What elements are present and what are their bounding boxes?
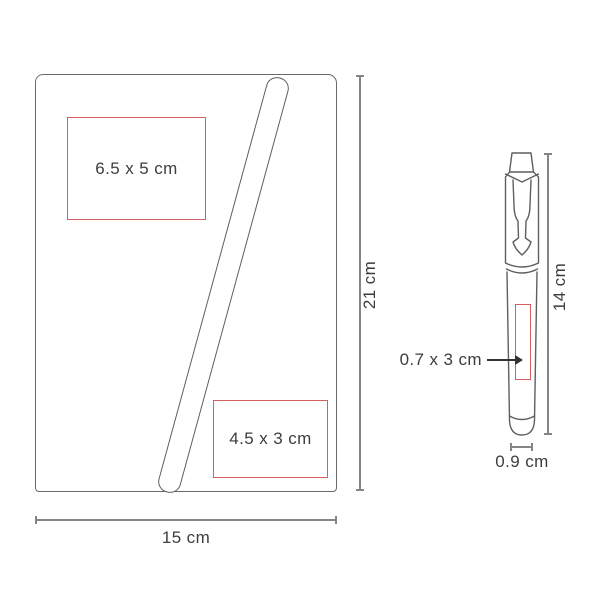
pen-cap-chevron [506, 174, 539, 182]
pen-height-dimension-line [547, 153, 549, 435]
dimension-tick [356, 489, 364, 491]
pen-print-area-label-wrap: 0.7 x 3 cm [380, 350, 482, 370]
pen-barrel-ring [510, 416, 535, 420]
notebook-print-area-bottom-label: 4.5 x 3 cm [229, 429, 311, 449]
dimension-tick [35, 516, 37, 524]
pen-height-label-wrap: 14 cm [550, 261, 570, 313]
pen-illustration [500, 150, 544, 442]
notebook-height-label: 21 cm [360, 261, 380, 309]
pen-cap [506, 172, 539, 267]
notebook-print-area-top: 6.5 x 5 cm [67, 117, 206, 220]
dimension-tick [544, 433, 552, 435]
pen-print-area [515, 304, 531, 380]
callout-arrow-line [487, 359, 518, 361]
notebook-width-label-wrap: 15 cm [146, 528, 226, 548]
notebook-print-area-bottom: 4.5 x 3 cm [213, 400, 328, 478]
dimension-tick [510, 443, 512, 451]
dimension-diagram: 6.5 x 5 cm 4.5 x 3 cm 21 cm 15 cm 0.7 x … [0, 0, 600, 600]
notebook-width-label: 15 cm [162, 528, 210, 547]
pen-print-area-label: 0.7 x 3 cm [400, 350, 482, 369]
pen-diameter-label-wrap: 0.9 cm [487, 452, 557, 472]
dimension-tick [335, 516, 337, 524]
pen-finial [510, 153, 534, 172]
notebook-height-label-wrap: 21 cm [360, 259, 380, 311]
dimension-tick [544, 153, 552, 155]
pen-cap-ring [507, 269, 538, 273]
pen-clip [513, 180, 531, 255]
pen-diameter-dimension-line [510, 446, 533, 448]
notebook-width-dimension-line [35, 519, 337, 521]
notebook-print-area-top-label: 6.5 x 5 cm [95, 159, 177, 179]
dimension-tick [356, 75, 364, 77]
pen-diameter-label: 0.9 cm [495, 452, 548, 471]
callout-arrow-head [515, 355, 523, 365]
dimension-tick [531, 443, 533, 451]
pen-height-label: 14 cm [550, 263, 570, 311]
